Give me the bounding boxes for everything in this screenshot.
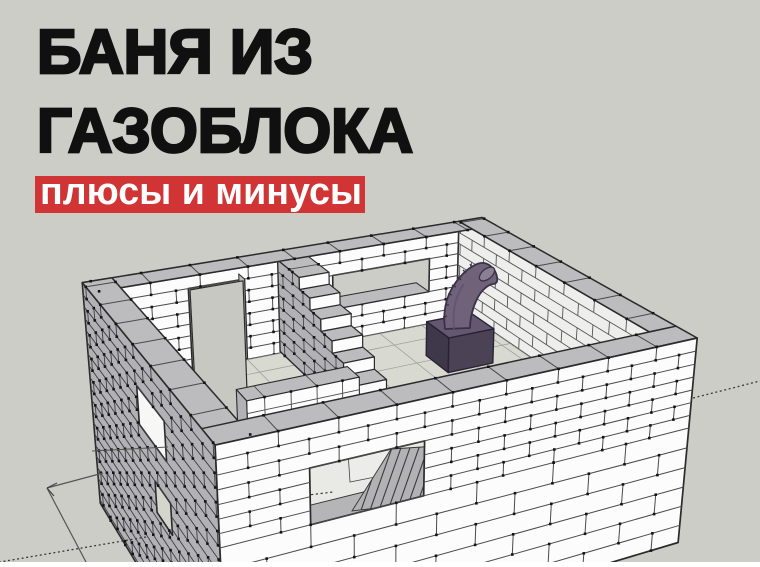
svg-text:плюсы и минусы: плюсы и минусы (40, 171, 362, 213)
svg-text:ГАЗОБЛОКА: ГАЗОБЛОКА (37, 97, 413, 166)
svg-text:БАНЯ ИЗ: БАНЯ ИЗ (37, 18, 313, 87)
